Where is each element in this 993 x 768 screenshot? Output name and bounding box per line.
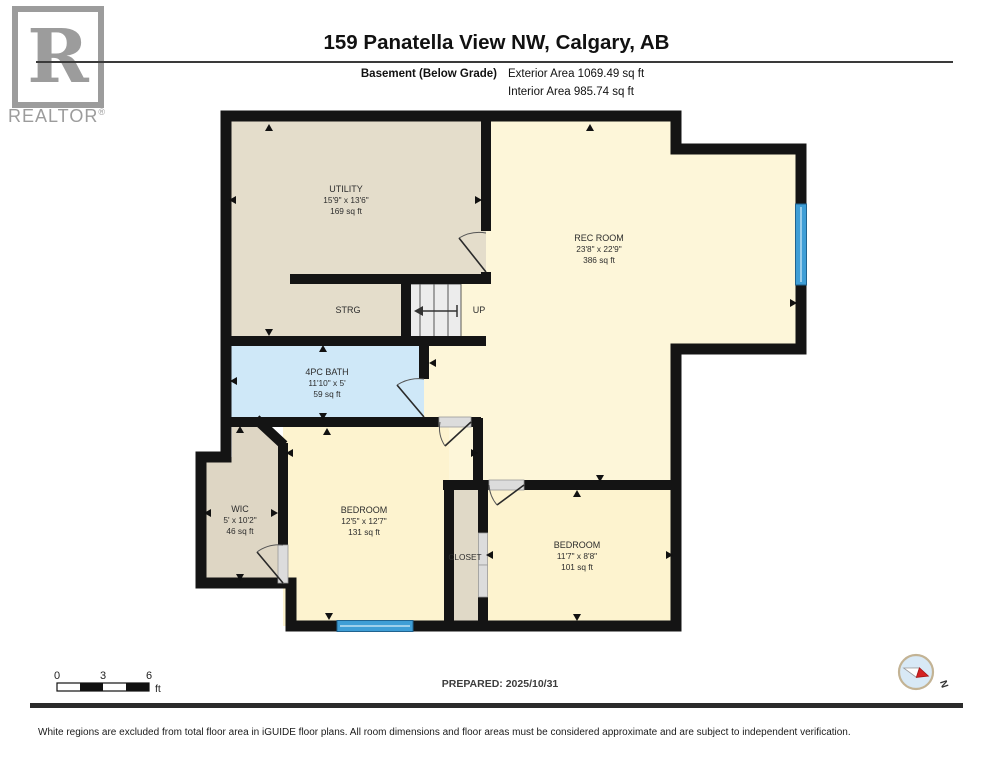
wic-area: 46 sq ft [226,526,254,536]
rec-room-label: REC ROOM [574,233,624,243]
footer-rule [30,703,963,708]
stairs [406,284,461,339]
bedroom1-label: BEDROOM [341,505,388,515]
bath-area: 59 sq ft [313,389,341,399]
utility-dims: 15'9" x 13'6" [323,195,369,205]
rec-room-floor [486,116,801,489]
wic-dims: 5' x 10'2" [223,515,256,525]
compass-north-label: N [937,679,950,689]
rec-room-dims: 23'8" x 22'9" [576,244,622,254]
bath-dims: 11'10" x 5' [308,378,346,388]
utility-label: UTILITY [329,184,363,194]
closet-label: CLOSET [448,552,481,562]
bedroom1-dims: 12'5" x 12'7" [341,516,387,526]
utility-area: 169 sq ft [330,206,363,216]
floor-plan-page: R REALTOR® 159 Panatella View NW, Calgar… [0,0,993,768]
bedroom2-area: 101 sq ft [561,562,594,572]
prepared-date: PREPARED: 2025/10/31 [442,678,559,690]
stairs-up-label: UP [473,305,486,315]
scale-tick-0: 0 [54,670,60,682]
disclaimer-text: White regions are excluded from total fl… [38,727,968,738]
rec-room-area: 386 sq ft [583,255,616,265]
bedroom1-area: 131 sq ft [348,527,381,537]
bedroom2-label: BEDROOM [554,540,601,550]
scale-tick-6: 6 [146,670,152,682]
scale-tick-3: 3 [100,670,106,682]
compass-icon: N [899,655,950,689]
room-floors [201,116,801,626]
floor-plan-svg: UTILITY 15'9" x 13'6" 169 sq ft REC ROOM… [0,0,993,768]
scale-unit: ft [155,683,161,695]
bath-label: 4PC BATH [305,367,348,377]
storage-label: STRG [335,305,360,315]
bedroom2-dims: 11'7" x 8'8" [557,551,597,561]
scale-bar: 0 3 6 ft [54,670,161,695]
wic-door-header [278,545,288,583]
wic-label: WIC [231,504,249,514]
closet-slider-bottom [479,565,488,597]
